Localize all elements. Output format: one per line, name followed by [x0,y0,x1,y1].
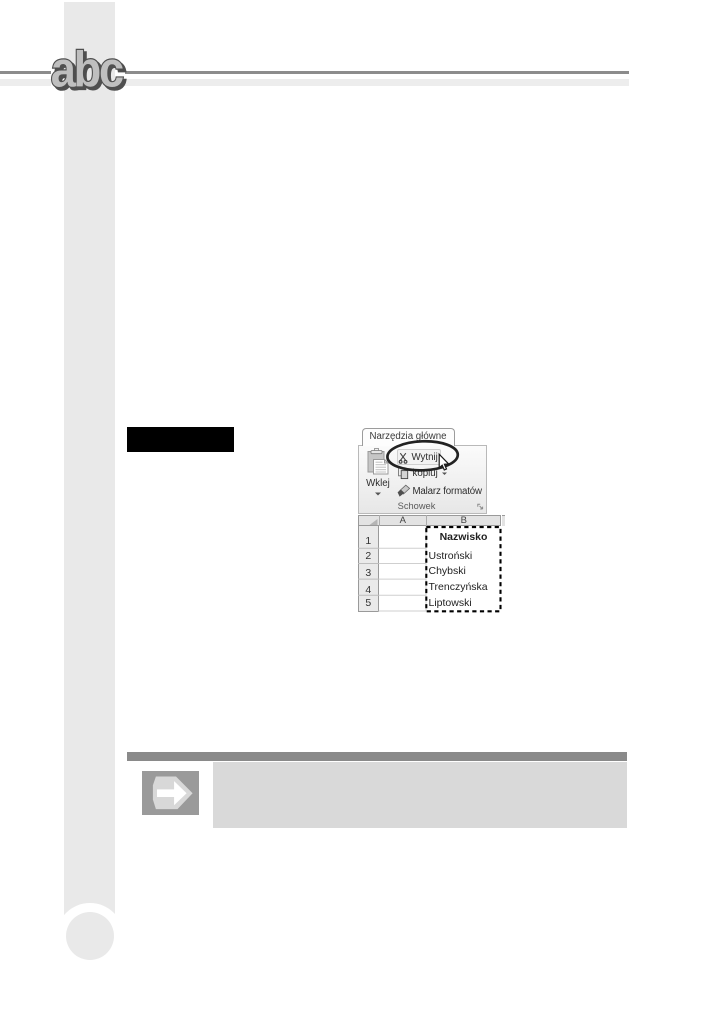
svg-text:abc: abc [51,40,123,97]
